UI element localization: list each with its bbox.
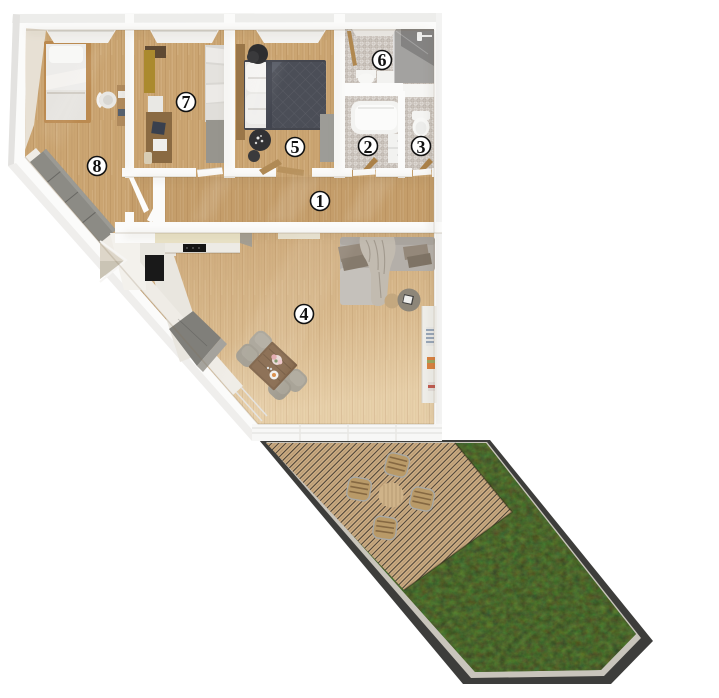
svg-text:1: 1 [316,191,325,211]
svg-text:7: 7 [182,92,191,112]
svg-text:5: 5 [291,137,300,157]
svg-text:8: 8 [93,156,102,176]
svg-text:3: 3 [417,137,426,157]
svg-text:2: 2 [364,137,373,157]
svg-text:4: 4 [300,304,309,324]
svg-text:6: 6 [378,50,387,70]
